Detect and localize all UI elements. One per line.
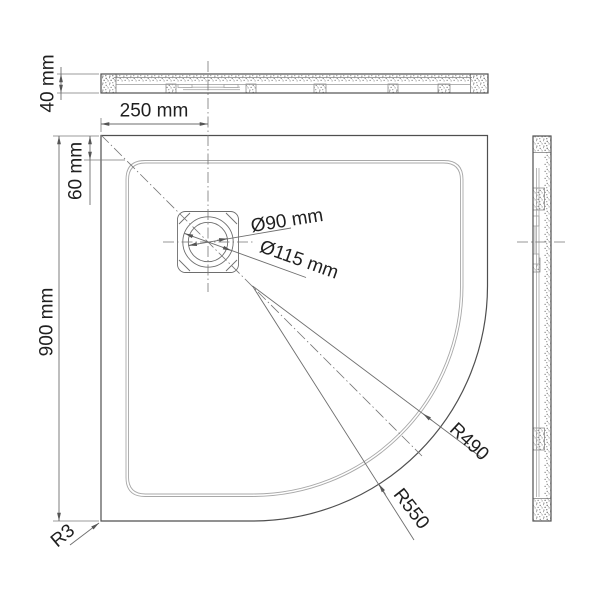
side-drain-recess: [533, 216, 539, 264]
label-corner-radius: R3: [47, 520, 79, 552]
dimension-tray-height: 40 mm: [38, 54, 100, 112]
label-drain-offset: 250 mm: [120, 101, 189, 122]
technical-drawing-page: 40 mm 250 mm 60 mm 900 mm R3 Ø90 mm Ø115…: [0, 0, 600, 600]
section-top-texture: [102, 75, 486, 82]
side-bottom-rim: [533, 499, 551, 521]
side-top-rim: [533, 136, 551, 152]
label-inner-arc-radius: R490: [445, 419, 493, 465]
dimension-drain-offset: 250 mm: [101, 101, 208, 133]
dimension-outer-arc-radius: R550: [253, 286, 434, 540]
dimension-inner-arc-radius: R490: [253, 286, 493, 465]
side-wall-texture: [545, 136, 552, 521]
side-section-view: [533, 136, 551, 521]
dimension-drain-inner-diameter: Ø90 mm: [188, 205, 324, 246]
shower-tray-drawing: 40 mm 250 mm 60 mm 900 mm R3 Ø90 mm Ø115…: [0, 0, 600, 600]
label-tray-height: 40 mm: [38, 54, 59, 112]
label-drain-inner-diameter: Ø90 mm: [249, 205, 324, 237]
diagonal-centerline: [101, 135, 422, 456]
front-section-view: [101, 74, 488, 93]
section-right-rim: [471, 75, 488, 93]
section-left-rim: [102, 75, 116, 93]
section-drain-recess: [178, 85, 240, 90]
label-outer-arc-radius: R550: [389, 485, 434, 534]
dimension-drain-outer-diameter: Ø115 mm: [185, 233, 342, 283]
label-drain-outer-diameter: Ø115 mm: [257, 236, 341, 283]
dimension-corner-radius: R3: [47, 520, 99, 552]
section-ribs: [166, 84, 450, 93]
label-rim-width: 60 mm: [66, 142, 87, 200]
label-tray-width: 900 mm: [37, 288, 58, 357]
dimension-rim-width: 60 mm: [53, 136, 125, 205]
